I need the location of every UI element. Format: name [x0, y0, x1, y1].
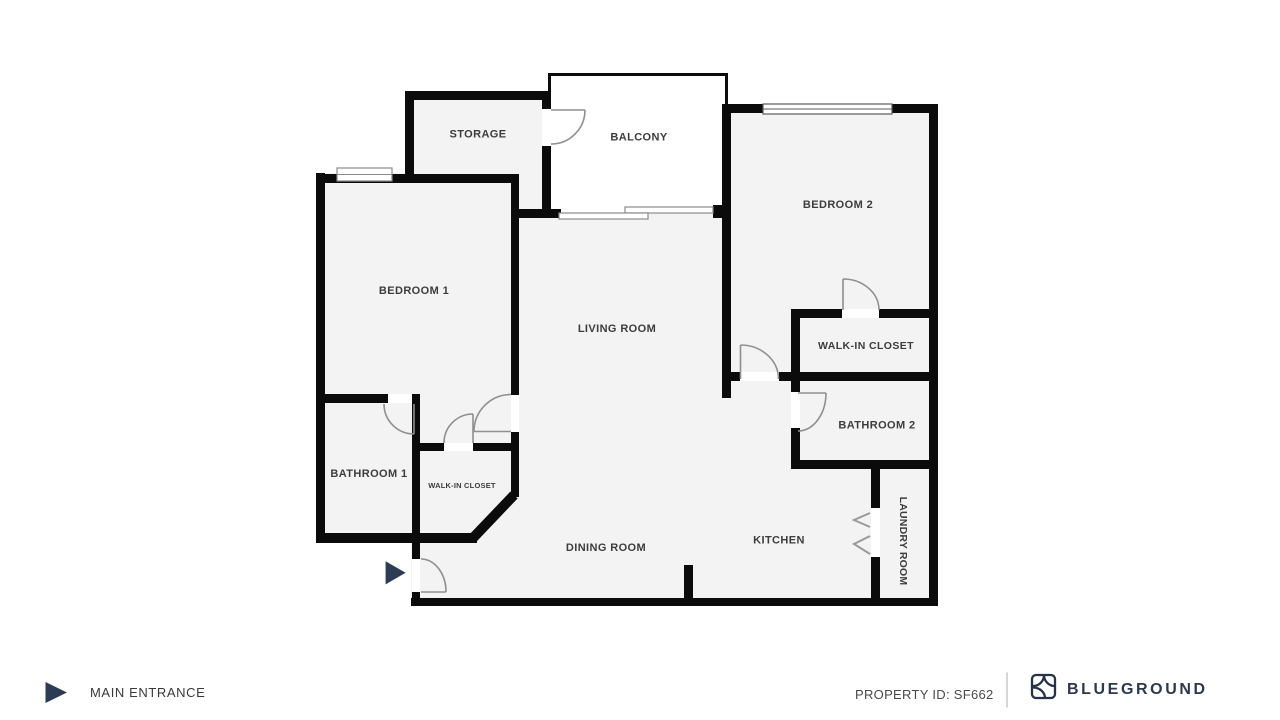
svg-text:LAUNDRY ROOM: LAUNDRY ROOM [897, 497, 909, 586]
svg-text:STORAGE: STORAGE [450, 129, 507, 141]
svg-text:BLUEGROUND: BLUEGROUND [1067, 681, 1208, 698]
svg-text:BALCONY: BALCONY [610, 132, 667, 144]
svg-text:WALK-IN CLOSET: WALK-IN CLOSET [818, 340, 914, 352]
svg-text:BATHROOM 2: BATHROOM 2 [838, 420, 915, 432]
svg-text:DINING ROOM: DINING ROOM [566, 542, 646, 554]
svg-text:LIVING ROOM: LIVING ROOM [578, 323, 656, 335]
svg-text:BEDROOM 2: BEDROOM 2 [803, 199, 873, 211]
svg-text:MAIN ENTRANCE: MAIN ENTRANCE [90, 685, 205, 700]
svg-text:BEDROOM 1: BEDROOM 1 [379, 285, 449, 297]
svg-text:PROPERTY ID: SF662: PROPERTY ID: SF662 [855, 687, 994, 702]
svg-text:WALK-IN CLOSET: WALK-IN CLOSET [428, 481, 496, 490]
svg-text:BATHROOM 1: BATHROOM 1 [330, 468, 407, 480]
svg-text:KITCHEN: KITCHEN [753, 535, 805, 547]
